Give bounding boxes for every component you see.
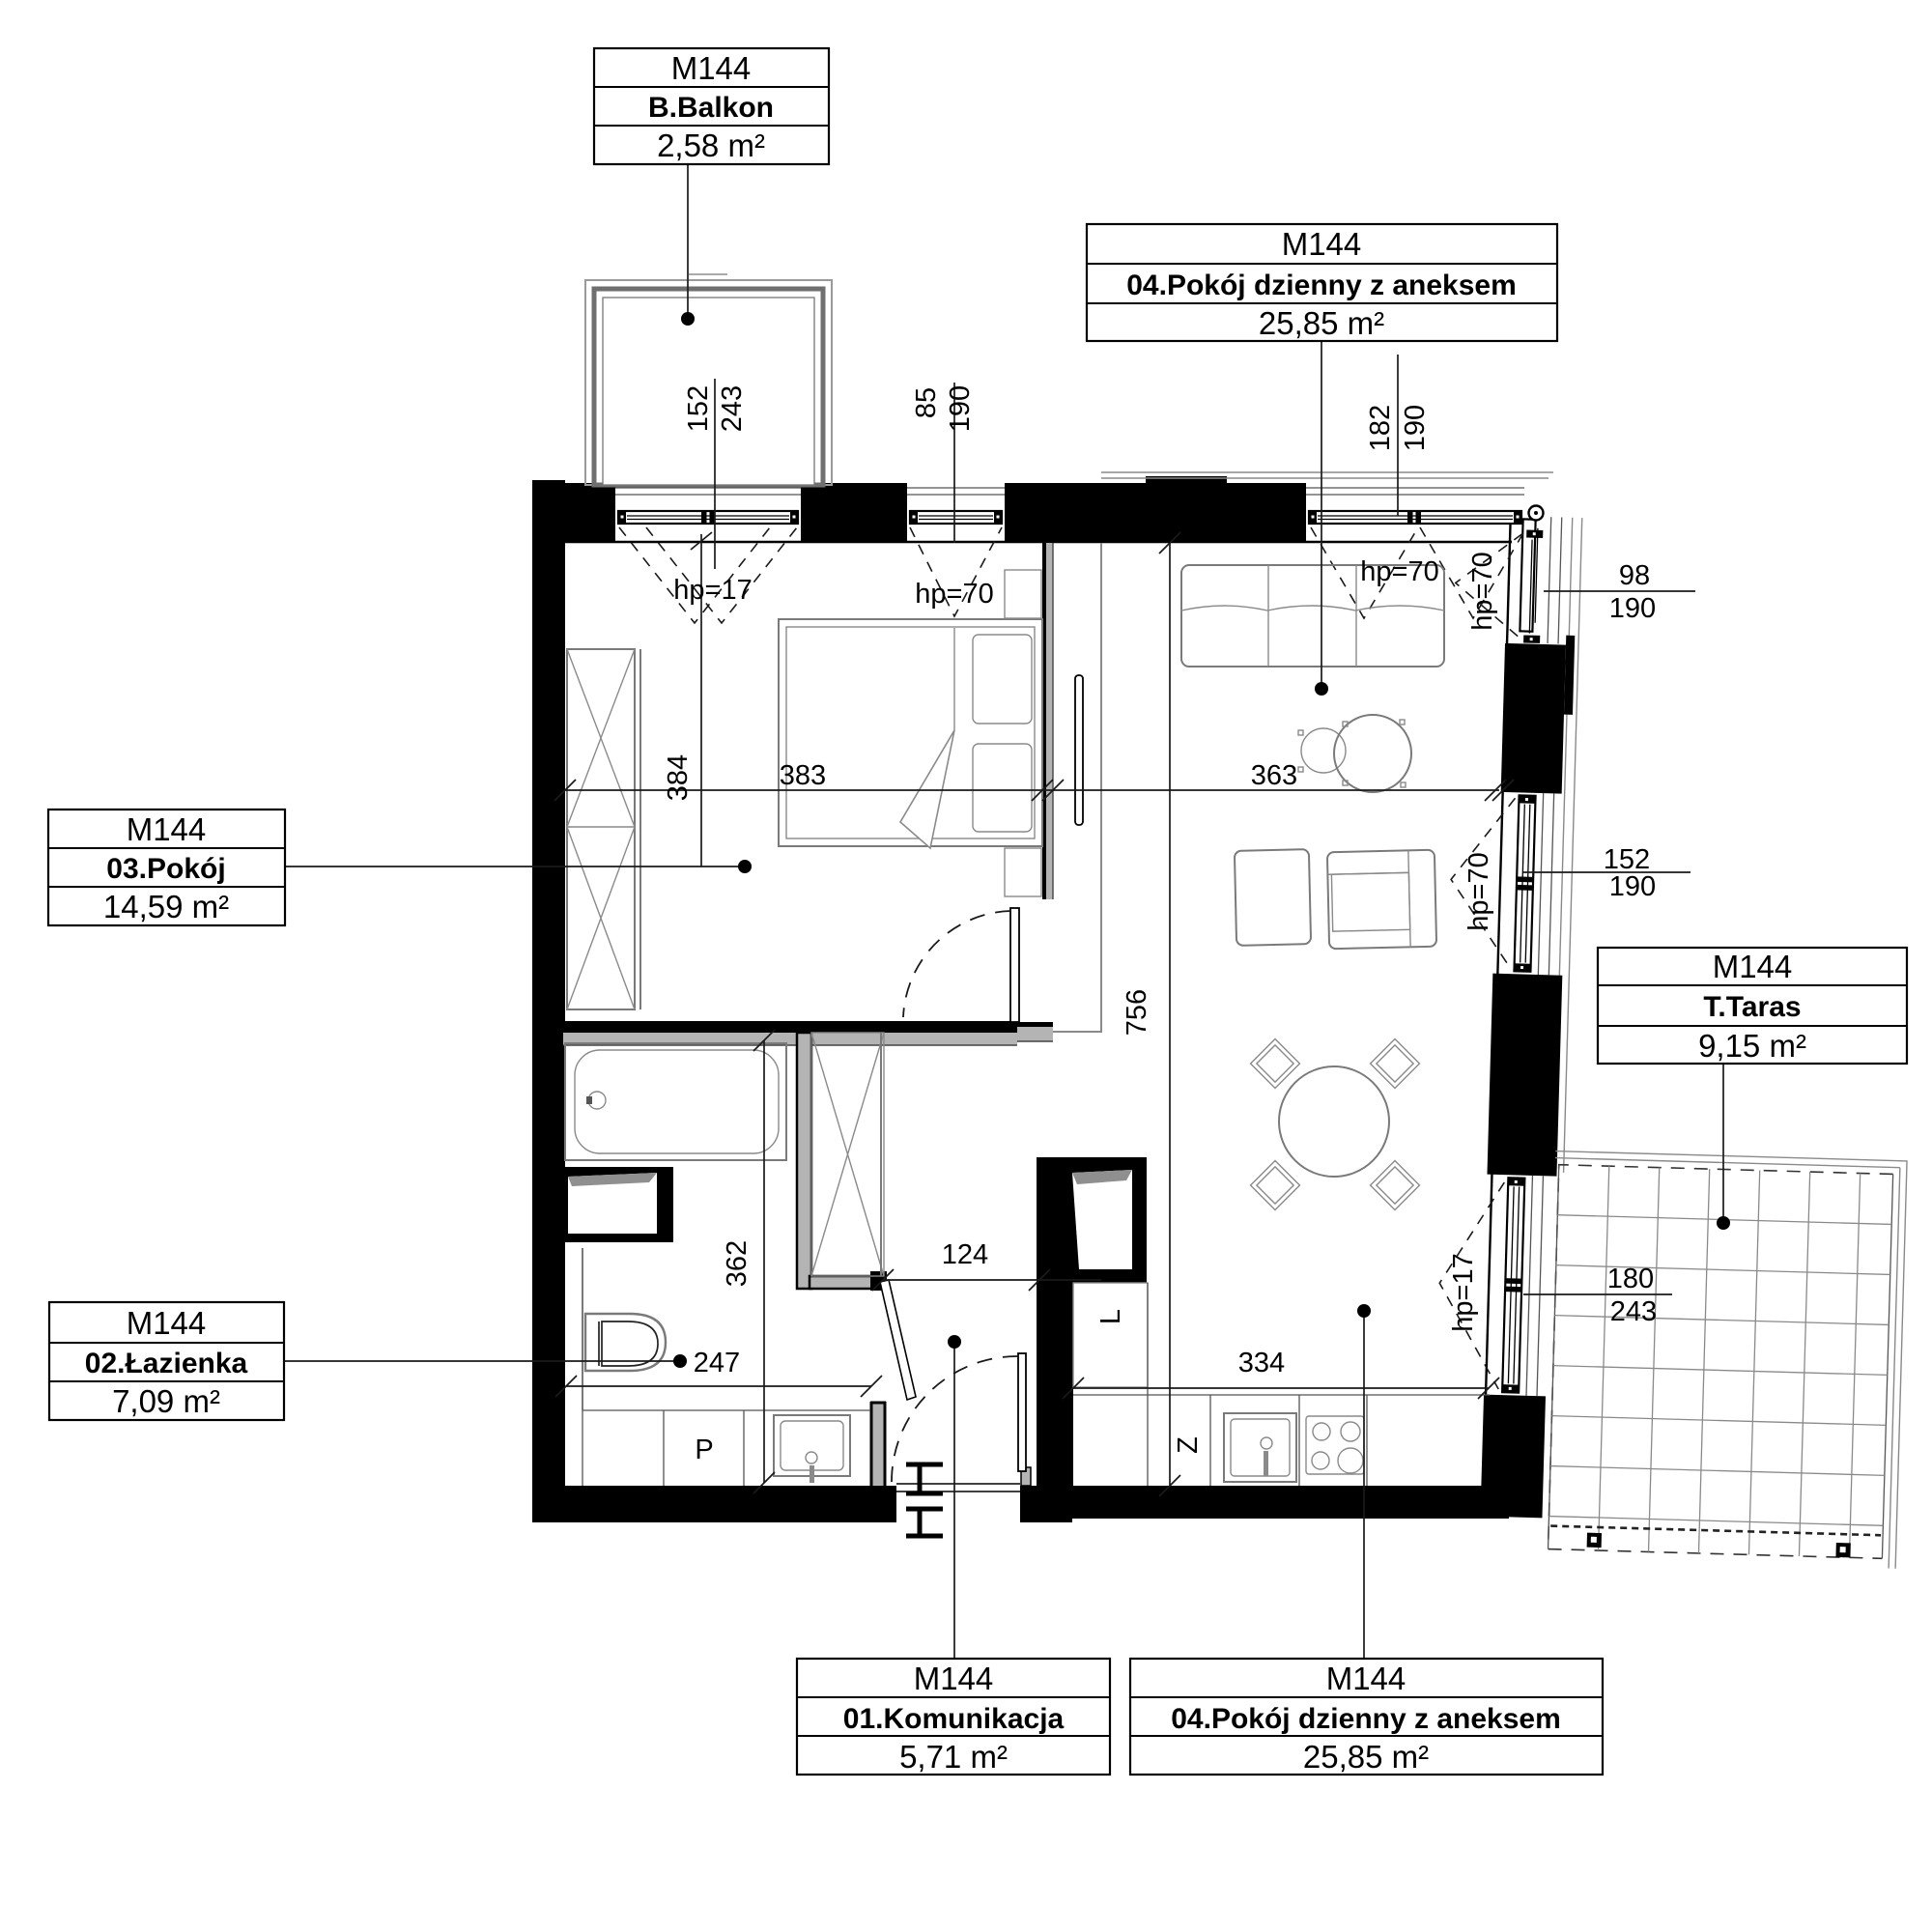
svg-text:2,58 m²: 2,58 m² (657, 128, 765, 163)
svg-text:L: L (1095, 1309, 1126, 1324)
svg-text:hp=70: hp=70 (1463, 852, 1494, 930)
svg-text:hp=70: hp=70 (915, 579, 993, 610)
svg-text:182: 182 (1365, 405, 1396, 451)
svg-text:01.Komunikacja: 01.Komunikacja (843, 1703, 1065, 1735)
svg-text:03.Pokój: 03.Pokój (106, 853, 225, 885)
svg-text:14,59 m²: 14,59 m² (103, 889, 229, 924)
svg-text:7,09 m²: 7,09 m² (112, 1383, 220, 1419)
svg-text:hp=17: hp=17 (1448, 1253, 1479, 1331)
svg-text:25,85 m²: 25,85 m² (1303, 1739, 1429, 1775)
svg-text:243: 243 (1610, 1296, 1657, 1327)
svg-text:124: 124 (942, 1239, 988, 1270)
svg-text:M144: M144 (1282, 226, 1362, 262)
svg-text:180: 180 (1607, 1264, 1654, 1294)
svg-text:T.Taras: T.Taras (1703, 991, 1801, 1023)
svg-text:M144: M144 (127, 1305, 207, 1341)
svg-text:190: 190 (1609, 593, 1656, 624)
svg-text:383: 383 (780, 760, 826, 791)
svg-text:190: 190 (1609, 871, 1656, 902)
svg-text:M144: M144 (127, 811, 207, 847)
svg-text:M144: M144 (914, 1661, 994, 1696)
svg-text:25,85 m²: 25,85 m² (1259, 305, 1384, 341)
svg-text:04.Pokój dzienny z aneksem: 04.Pokój dzienny z aneksem (1171, 1703, 1561, 1735)
svg-text:190: 190 (945, 385, 976, 432)
svg-text:362: 362 (722, 1240, 753, 1287)
svg-text:M144: M144 (671, 50, 752, 86)
svg-text:85: 85 (911, 387, 942, 418)
svg-text:756: 756 (1122, 989, 1152, 1036)
svg-text:5,71 m²: 5,71 m² (899, 1739, 1008, 1775)
svg-text:04.Pokój dzienny z aneksem: 04.Pokój dzienny z aneksem (1126, 270, 1517, 301)
svg-text:363: 363 (1251, 760, 1297, 791)
svg-text:98: 98 (1619, 560, 1650, 591)
svg-text:hp=17: hp=17 (673, 575, 752, 606)
svg-text:hp=70: hp=70 (1360, 556, 1438, 587)
svg-text:P: P (695, 1435, 713, 1465)
svg-text:B.Balkon: B.Balkon (648, 92, 774, 124)
svg-text:384: 384 (663, 754, 694, 801)
svg-text:243: 243 (717, 385, 748, 432)
svg-text:190: 190 (1400, 405, 1431, 451)
svg-text:M144: M144 (1713, 949, 1793, 984)
svg-text:152: 152 (683, 385, 714, 432)
svg-text:334: 334 (1238, 1348, 1285, 1378)
svg-text:hp=70: hp=70 (1467, 552, 1498, 630)
svg-text:M144: M144 (1326, 1661, 1406, 1696)
svg-text:Z: Z (1173, 1436, 1204, 1454)
svg-text:247: 247 (694, 1348, 740, 1378)
svg-text:9,15 m²: 9,15 m² (1698, 1028, 1806, 1064)
svg-text:02.Łazienka: 02.Łazienka (85, 1348, 248, 1379)
